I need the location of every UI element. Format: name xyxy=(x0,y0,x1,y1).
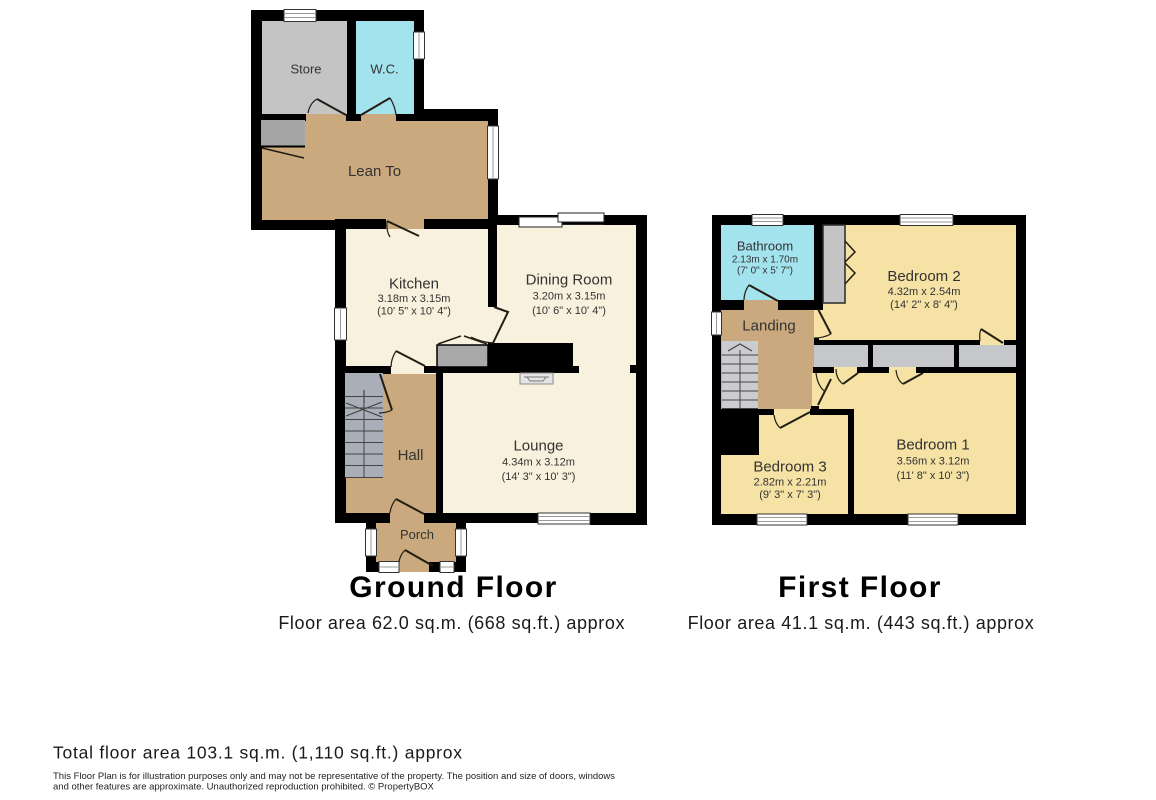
svg-text:4.32m x 2.54m: 4.32m x 2.54m xyxy=(888,286,961,298)
svg-text:Landing: Landing xyxy=(742,318,795,335)
svg-text:and other features are approxi: and other features are approximate. Unau… xyxy=(53,781,435,792)
svg-text:Hall: Hall xyxy=(398,447,424,464)
svg-text:First Floor: First Floor xyxy=(778,571,942,604)
svg-text:(14' 3" x 10' 3"): (14' 3" x 10' 3") xyxy=(502,471,576,483)
svg-text:3.56m x 3.12m: 3.56m x 3.12m xyxy=(897,456,970,468)
svg-text:Total floor area 103.1 sq.m. (: Total floor area 103.1 sq.m. (1,110 sq.f… xyxy=(53,743,463,763)
svg-text:(7' 0" x 5' 7"): (7' 0" x 5' 7") xyxy=(737,266,793,277)
svg-text:Bedroom 2: Bedroom 2 xyxy=(887,268,960,285)
svg-text:Bedroom 1: Bedroom 1 xyxy=(896,437,969,454)
svg-text:Bedroom 3: Bedroom 3 xyxy=(753,459,826,476)
svg-text:2.82m x 2.21m: 2.82m x 2.21m xyxy=(754,477,827,489)
svg-text:W.C.: W.C. xyxy=(370,62,398,77)
svg-text:Store: Store xyxy=(290,62,321,77)
svg-text:(9' 3" x 7' 3"): (9' 3" x 7' 3") xyxy=(759,489,821,501)
svg-text:2.13m x 1.70m: 2.13m x 1.70m xyxy=(732,255,798,266)
svg-text:Floor area 62.0 sq.m. (668 sq.: Floor area 62.0 sq.m. (668 sq.ft.) appro… xyxy=(278,613,625,633)
svg-text:Porch: Porch xyxy=(400,527,434,542)
svg-text:3.20m x 3.15m: 3.20m x 3.15m xyxy=(533,291,606,303)
svg-text:(10' 5" x 10' 4"): (10' 5" x 10' 4") xyxy=(377,306,451,318)
svg-text:This Floor Plan is for illustr: This Floor Plan is for illustration purp… xyxy=(53,771,615,782)
svg-text:4.34m x 3.12m: 4.34m x 3.12m xyxy=(502,456,575,468)
svg-text:(11' 8" x 10' 3"): (11' 8" x 10' 3") xyxy=(897,470,970,482)
svg-text:Lounge: Lounge xyxy=(513,438,563,455)
svg-text:(10' 6" x 10' 4"): (10' 6" x 10' 4") xyxy=(532,305,606,317)
svg-text:Floor area 41.1 sq.m. (443 sq.: Floor area 41.1 sq.m. (443 sq.ft.) appro… xyxy=(688,613,1035,633)
svg-text:Lean To: Lean To xyxy=(348,163,401,180)
svg-text:Kitchen: Kitchen xyxy=(389,276,439,293)
svg-text:Dining Room: Dining Room xyxy=(526,272,613,289)
svg-text:Ground Floor: Ground Floor xyxy=(349,571,557,604)
svg-text:(14' 2" x 8' 4"): (14' 2" x 8' 4") xyxy=(890,299,958,311)
svg-text:Bathroom: Bathroom xyxy=(737,239,793,254)
svg-text:3.18m x 3.15m: 3.18m x 3.15m xyxy=(378,293,451,305)
